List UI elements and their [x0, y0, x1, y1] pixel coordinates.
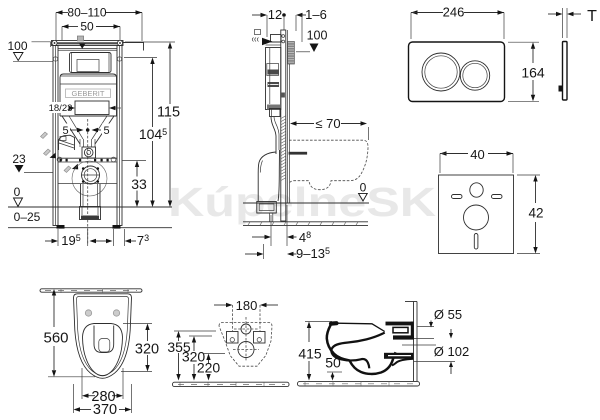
svg-text:42: 42 [528, 206, 543, 221]
svg-text:GEBERIT: GEBERIT [72, 89, 105, 98]
svg-text:246: 246 [443, 5, 465, 20]
svg-text:100: 100 [7, 39, 27, 53]
svg-text:T: T [587, 8, 597, 25]
svg-text:5: 5 [103, 125, 109, 137]
svg-text:100: 100 [307, 29, 328, 43]
svg-text:12: 12 [268, 7, 282, 22]
svg-text:0: 0 [14, 185, 21, 199]
svg-text:220: 220 [197, 360, 221, 376]
svg-text:320: 320 [135, 342, 159, 358]
svg-text:80–110: 80–110 [67, 6, 106, 20]
svg-text:370: 370 [93, 402, 117, 418]
svg-text:33: 33 [131, 176, 147, 192]
svg-text:9–135: 9–135 [296, 246, 330, 261]
svg-text:23: 23 [12, 152, 26, 166]
svg-text:Ø 55: Ø 55 [434, 307, 462, 322]
svg-text:115: 115 [157, 105, 180, 121]
svg-text:KúpelneSK: KúpelneSK [168, 179, 436, 225]
svg-text:0: 0 [360, 181, 367, 195]
svg-text:Ø 102: Ø 102 [434, 344, 469, 359]
svg-text:1–6: 1–6 [305, 7, 327, 22]
svg-text:≤ 70: ≤ 70 [315, 116, 340, 131]
svg-text:164: 164 [521, 65, 545, 81]
svg-text:40: 40 [470, 147, 484, 162]
svg-text:0–25: 0–25 [14, 210, 41, 224]
svg-text:180: 180 [236, 298, 258, 313]
svg-text:560: 560 [43, 330, 68, 347]
svg-text:415: 415 [298, 346, 322, 362]
svg-text:50: 50 [80, 20, 94, 34]
